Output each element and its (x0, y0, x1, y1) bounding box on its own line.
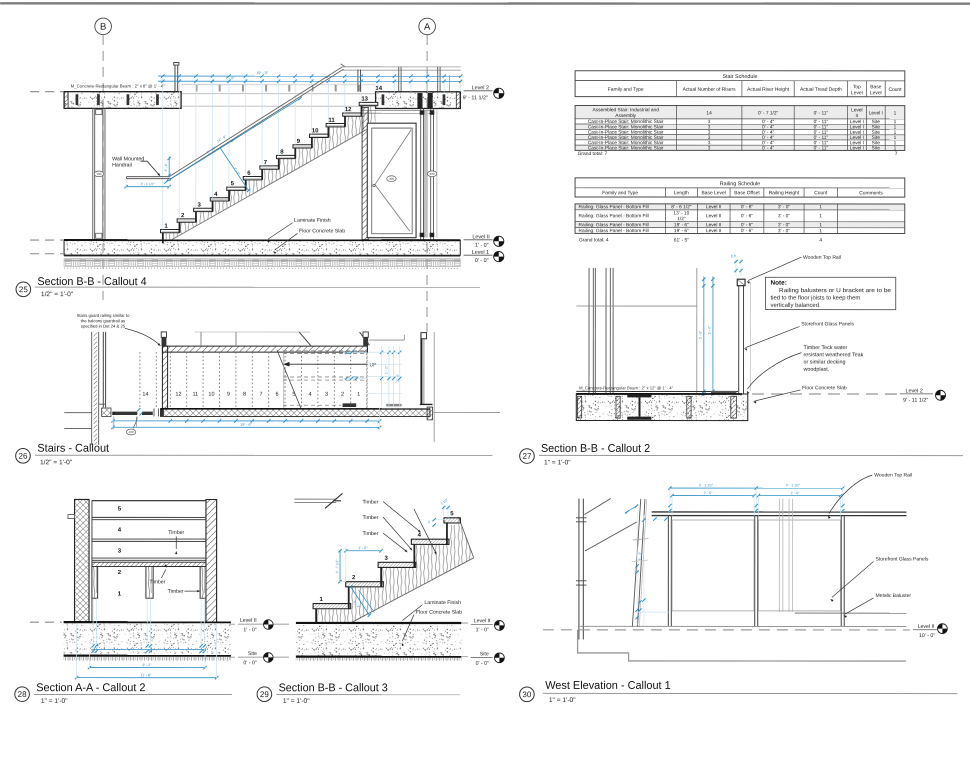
svg-text:3' - 6": 3' - 6" (699, 330, 703, 339)
svg-text:Level II: Level II (918, 624, 935, 630)
svg-text:1" = 1'-0": 1" = 1'-0" (549, 697, 576, 704)
svg-text:2' - 1 1/2": 2' - 1 1/2" (141, 182, 156, 186)
svg-text:vertically balanced.: vertically balanced. (771, 302, 821, 309)
svg-text:Railing: Glass Panel - Bottom: Railing: Glass Panel - Bottom Fill (579, 228, 649, 234)
svg-text:1" = 1'-0": 1" = 1'-0" (544, 459, 571, 466)
svg-text:3' - 0": 3' - 0" (778, 222, 791, 228)
svg-text:Level II: Level II (706, 213, 721, 219)
svg-text:3: 3 (325, 392, 328, 398)
svg-text:Level II: Level II (706, 228, 721, 234)
svg-text:12: 12 (345, 106, 352, 113)
svg-text:Base Offset: Base Offset (734, 190, 760, 196)
svg-text:1/2" = 1'-0": 1/2" = 1'-0" (41, 291, 74, 298)
svg-text:9' - 11 1/2": 9' - 11 1/2" (463, 95, 488, 101)
svg-text:1: 1 (894, 110, 897, 116)
svg-text:Cast-In-Place Stair: Monolithi: Cast-In-Place Stair: Monolithic Stair (588, 135, 664, 141)
svg-text:3' - 0": 3' - 0" (778, 204, 791, 210)
svg-text:Wooden Top Rail: Wooden Top Rail (874, 473, 912, 479)
svg-text:3' - 1 1/2": 3' - 1 1/2" (699, 483, 714, 487)
svg-text:Site: Site (872, 119, 881, 125)
svg-text:Level I: Level I (850, 130, 864, 136)
svg-text:Cast-In-Place Stair: Monolithi: Cast-In-Place Stair: Monolithic Stair (588, 119, 664, 125)
svg-text:3: 3 (708, 135, 711, 141)
svg-text:19' - 6": 19' - 6" (674, 222, 689, 228)
svg-text:5' - 0": 5' - 0" (638, 551, 642, 560)
svg-text:Cast-In-Place Stair: Monolithi: Cast-In-Place Stair: Monolithic Stair (588, 145, 664, 151)
svg-text:Level I: Level I (850, 135, 864, 141)
svg-text:the balcony guardrail as: the balcony guardrail as (81, 318, 125, 323)
svg-text:1: 1 (357, 392, 360, 398)
svg-text:0' - 4": 0' - 4" (762, 119, 775, 125)
svg-text:Level I: Level I (850, 140, 864, 146)
svg-text:1: 1 (819, 213, 822, 219)
svg-text:Site: Site (872, 140, 881, 146)
svg-text:specified in Det 24 & 25: specified in Det 24 & 25 (81, 324, 126, 329)
svg-text:Handrail: Handrail (112, 162, 132, 168)
svg-text:1: 1 (894, 135, 897, 141)
svg-text:0' - 4": 0' - 4" (762, 135, 775, 141)
svg-text:1: 1 (894, 145, 897, 151)
svg-text:1' - 2": 1' - 2" (384, 366, 388, 374)
svg-text:0' - 11": 0' - 11" (814, 110, 829, 116)
svg-text:Stair Schedule: Stair Schedule (722, 74, 757, 80)
svg-text:0' - 4": 0' - 4" (762, 124, 775, 130)
svg-text:0' - 7 1/2": 0' - 7 1/2" (758, 110, 779, 116)
svg-text:400: 400 (389, 177, 394, 181)
svg-text:Storefront Glass Panels: Storefront Glass Panels (876, 557, 929, 563)
svg-text:6: 6 (275, 392, 278, 398)
svg-text:B: B (100, 22, 106, 33)
svg-text:1" = 1'-0": 1" = 1'-0" (41, 698, 68, 705)
svg-text:Site: Site (248, 651, 257, 657)
svg-text:400: 400 (129, 430, 134, 434)
svg-text:Stairs - Callout: Stairs - Callout (37, 443, 110, 455)
svg-text:11' - 8": 11' - 8" (140, 673, 152, 677)
svg-text:Floor Concrete Slab: Floor Concrete Slab (802, 385, 847, 391)
svg-text:3' - 0": 3' - 0" (778, 213, 791, 219)
svg-text:Timber Teck water: Timber Teck water (804, 345, 848, 351)
svg-text:Grand total: 7: Grand total: 7 (578, 151, 608, 157)
svg-text:Timber: Timber (149, 579, 165, 585)
svg-text:Level I: Level I (850, 124, 864, 130)
svg-text:28: 28 (18, 690, 27, 699)
svg-text:14: 14 (142, 392, 148, 398)
svg-text:West Elevation - Callout 1: West Elevation - Callout 1 (545, 680, 671, 692)
svg-text:or similar decking: or similar decking (804, 360, 846, 366)
svg-text:3: 3 (708, 119, 711, 125)
svg-text:9: 9 (227, 392, 230, 398)
svg-text:Railing: Glass Panel - Bottom: Railing: Glass Panel - Bottom Fill (579, 213, 649, 219)
svg-text:Railing Schedule: Railing Schedule (720, 181, 760, 187)
svg-text:1' - 0": 1' - 0" (475, 243, 489, 249)
svg-text:Length: Length (674, 190, 689, 196)
svg-text:8: 8 (243, 392, 246, 398)
svg-text:3: 3 (708, 145, 711, 151)
svg-text:1' - 0": 1' - 0" (243, 627, 256, 633)
svg-text:Level II: Level II (474, 618, 491, 624)
svg-text:2' - 6": 2' - 6" (791, 491, 800, 495)
svg-text:11: 11 (193, 392, 199, 398)
svg-text:1/2" = 1'-0": 1/2" = 1'-0" (40, 459, 73, 466)
svg-text:26: 26 (19, 452, 28, 461)
svg-text:61' - 5": 61' - 5" (674, 237, 689, 243)
svg-text:Cast-In-Place Stair: Monolithi: Cast-In-Place Stair: Monolithic Stair (588, 124, 664, 130)
svg-text:11: 11 (328, 117, 335, 124)
svg-text:9' - 11 1/2": 9' - 11 1/2" (903, 398, 928, 404)
svg-text:27: 27 (523, 452, 532, 461)
svg-text:Site: Site (872, 135, 881, 141)
svg-text:Level: Level (851, 90, 863, 96)
svg-text:Note:: Note: (771, 280, 787, 287)
svg-text:II: II (856, 113, 859, 119)
svg-text:Laminate Finish: Laminate Finish (294, 218, 331, 224)
svg-text:Railing: Glass Panel - Bottom: Railing: Glass Panel - Bottom Fill (579, 204, 649, 210)
svg-text:resistant weathered Teak: resistant weathered Teak (804, 352, 864, 358)
svg-text:0' - 11": 0' - 11" (814, 135, 829, 141)
svg-text:1: 1 (819, 204, 822, 210)
svg-text:Level: Level (870, 90, 882, 96)
svg-text:Railing balusters or U bracket: Railing balusters or U bracket are to be (779, 287, 892, 294)
svg-text:tied to the floor joists to ke: tied to the floor joists to keep them (771, 294, 861, 301)
svg-text:3: 3 (708, 124, 711, 130)
svg-text:Site: Site (872, 145, 881, 151)
svg-text:7: 7 (259, 392, 262, 398)
svg-text:0' - 6": 0' - 6" (741, 222, 754, 228)
svg-text:Family and Type: Family and Type (602, 190, 638, 196)
svg-text:Count: Count (888, 87, 902, 93)
svg-text:3: 3 (708, 140, 711, 146)
svg-text:29: 29 (260, 690, 269, 699)
svg-text:14: 14 (375, 85, 382, 92)
svg-text:1' - 0": 1' - 0" (358, 546, 368, 550)
svg-text:1" = 1'-0": 1" = 1'-0" (283, 698, 310, 705)
svg-text:Base: Base (870, 84, 881, 90)
svg-text:0' - 6": 0' - 6" (741, 204, 754, 210)
svg-text:7: 7 (895, 151, 898, 157)
svg-text:UP: UP (370, 362, 378, 368)
svg-text:Section B-B - Callout 4: Section B-B - Callout 4 (37, 276, 146, 288)
svg-text:A: A (424, 22, 431, 33)
svg-text:woodplast.: woodplast. (803, 367, 830, 373)
svg-text:1: 1 (819, 222, 822, 228)
svg-text:1: 1 (894, 124, 897, 130)
svg-text:0' - 6": 0' - 6" (741, 228, 754, 234)
svg-text:14: 14 (706, 110, 712, 116)
svg-text:3' - 6": 3' - 6" (164, 163, 168, 171)
svg-text:2: 2 (341, 392, 344, 398)
svg-text:Cast-In-Place Stair: Monolithi: Cast-In-Place Stair: Monolithic Stair (588, 140, 664, 146)
svg-text:Level II: Level II (706, 204, 721, 210)
svg-text:Actual Number of Risers: Actual Number of Risers (683, 87, 737, 93)
svg-text:Section B-B - Callout 2: Section B-B - Callout 2 (541, 443, 650, 455)
svg-text:1' - 0": 1' - 0" (476, 627, 489, 633)
svg-text:1/2": 1/2" (677, 216, 686, 222)
svg-text:13' - 10: 13' - 10 (673, 210, 689, 216)
svg-text:Timber: Timber (362, 515, 378, 521)
svg-text:19' - 6": 19' - 6" (240, 423, 252, 427)
svg-text:0' - 11": 0' - 11" (814, 124, 829, 130)
svg-text:Railing Height: Railing Height (769, 190, 800, 196)
svg-text:10: 10 (208, 392, 214, 398)
svg-text:Level I: Level I (850, 145, 864, 151)
svg-text:Level II: Level II (706, 222, 721, 228)
svg-text:4: 4 (308, 392, 311, 398)
svg-text:Section A-A - Callout 2: Section A-A - Callout 2 (36, 682, 145, 694)
svg-text:Wall Mounted: Wall Mounted (112, 156, 144, 162)
svg-text:3' - 0": 3' - 0" (708, 325, 712, 334)
svg-text:0' - 4": 0' - 4" (762, 145, 775, 151)
svg-text:Assembled Stair: Industrial an: Assembled Stair: Industrial and (592, 107, 659, 113)
svg-text:10' - 0": 10' - 0" (919, 633, 935, 639)
svg-text:0' - 0": 0' - 0" (476, 661, 489, 667)
svg-text:Top: Top (853, 84, 861, 90)
svg-text:1: 1 (894, 119, 897, 125)
svg-text:8' - 6 1/2": 8' - 6 1/2" (671, 204, 692, 210)
svg-text:10: 10 (312, 127, 319, 134)
svg-text:9' - 2": 9' - 2" (142, 663, 152, 667)
svg-text:Site: Site (480, 651, 489, 657)
svg-text:E.P: E.P (731, 254, 737, 258)
svg-text:0' - 6": 0' - 6" (741, 213, 754, 219)
svg-text:Laminate Finish: Laminate Finish (424, 600, 461, 606)
svg-text:100: 100 (96, 172, 101, 176)
svg-text:3' - 4": 3' - 4" (396, 374, 400, 382)
svg-text:0' - 11": 0' - 11" (814, 145, 829, 151)
svg-text:Railing: Glass Panel - Bottom: Railing: Glass Panel - Bottom Fill (579, 222, 649, 228)
svg-text:Actual Tread Depth: Actual Tread Depth (800, 87, 842, 93)
svg-text:Comments: Comments (859, 190, 883, 196)
svg-text:3' - 1 1/2": 3' - 1 1/2" (786, 483, 801, 487)
svg-text:Base Level: Base Level (702, 190, 726, 196)
svg-text:3: 3 (708, 130, 711, 136)
svg-text:M_Concrete-Rectangular Beam :: M_Concrete-Rectangular Beam : 2" x 12" @… (579, 385, 674, 390)
svg-text:25: 25 (19, 285, 28, 294)
svg-text:0' - 11": 0' - 11" (814, 119, 829, 125)
svg-text:0' - 0": 0' - 0" (475, 258, 489, 264)
svg-text:0' - 7 1/2": 0' - 7 1/2" (335, 559, 339, 574)
svg-text:Wooden Top Rail: Wooden Top Rail (803, 255, 841, 261)
svg-text:Level II: Level II (240, 618, 257, 624)
svg-text:30: 30 (522, 690, 531, 699)
svg-text:Family and Type: Family and Type (608, 87, 644, 93)
svg-text:Timber: Timber (362, 499, 378, 505)
svg-text:Stairs guard railing similar t: Stairs guard railing similar to (77, 313, 131, 318)
svg-text:1: 1 (894, 130, 897, 136)
svg-text:Site: Site (872, 124, 881, 130)
svg-text:0' - 11": 0' - 11" (814, 130, 829, 136)
svg-text:Level I: Level I (850, 119, 864, 125)
svg-text:19' - 6": 19' - 6" (674, 228, 689, 234)
svg-text:Actual Riser Height: Actual Riser Height (747, 87, 790, 93)
svg-text:Grand total: 4: Grand total: 4 (579, 237, 609, 243)
svg-text:Cast-In-Place Stair: Monolithi: Cast-In-Place Stair: Monolithic Stair (588, 130, 664, 136)
svg-text:12: 12 (175, 392, 181, 398)
svg-text:0' - 11": 0' - 11" (814, 140, 829, 146)
svg-text:1: 1 (819, 228, 822, 234)
svg-text:Site: Site (872, 130, 881, 136)
svg-text:M_Concrete-Rectangular Beam :: M_Concrete-Rectangular Beam : 2" x 8" @ … (71, 83, 166, 88)
svg-text:Level I: Level I (869, 110, 883, 116)
svg-text:3' - 0": 3' - 0" (778, 228, 791, 234)
svg-text:Timber: Timber (362, 531, 378, 537)
svg-text:19' - 3": 19' - 3" (256, 71, 268, 75)
svg-text:Storefront Glass Panels: Storefront Glass Panels (801, 321, 854, 327)
svg-text:Assembly: Assembly (615, 113, 636, 119)
svg-text:4: 4 (819, 238, 822, 244)
svg-text:280: 280 (430, 172, 435, 176)
svg-text:0' - 0": 0' - 0" (243, 660, 256, 666)
svg-text:1: 1 (894, 140, 897, 146)
svg-text:Count: Count (814, 190, 828, 196)
svg-text:Floor Concrete Slab: Floor Concrete Slab (416, 610, 462, 616)
svg-text:Section B-B - Callout 3: Section B-B - Callout 3 (279, 682, 388, 694)
svg-text:Timber: Timber (168, 530, 184, 536)
svg-text:Timber: Timber (168, 589, 184, 595)
svg-text:Level: Level (851, 107, 862, 113)
svg-text:Metalic Baluster: Metalic Baluster (876, 593, 912, 599)
svg-text:2' - 6": 2' - 6" (704, 491, 713, 495)
svg-text:0' - 4": 0' - 4" (762, 130, 775, 136)
svg-text:0' - 4": 0' - 4" (762, 140, 775, 146)
svg-text:Floor Concrete Slab: Floor Concrete Slab (299, 228, 345, 234)
svg-text:13: 13 (361, 96, 368, 103)
svg-text:1' - 0": 1' - 0" (226, 76, 235, 80)
